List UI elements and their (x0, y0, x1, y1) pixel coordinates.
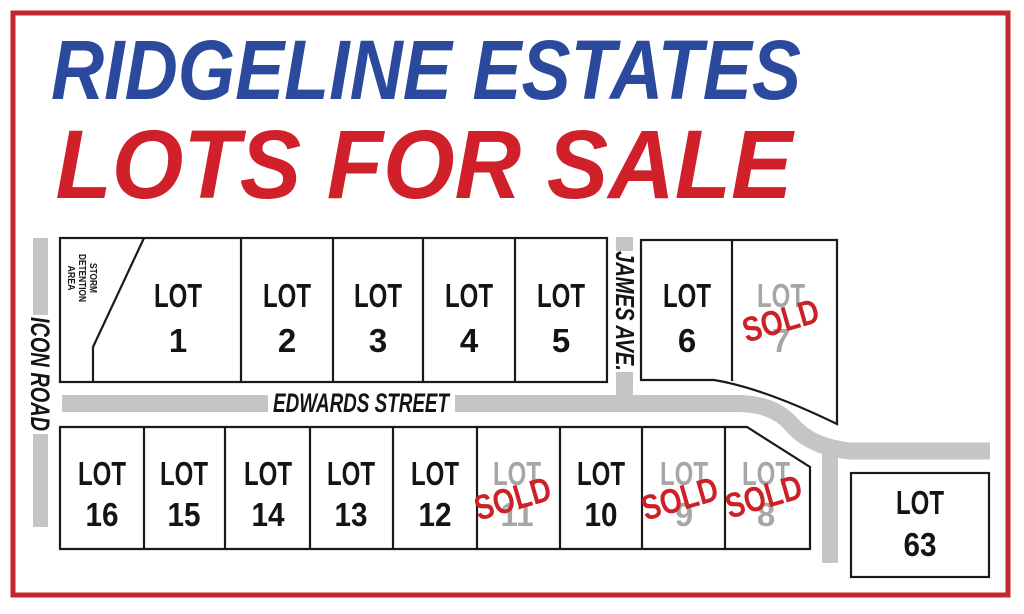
lot-16-number: 16 (86, 496, 119, 533)
lot-15-word: LOT (160, 455, 208, 492)
lot-15-number: 15 (168, 496, 201, 533)
lot-14-word: LOT (244, 455, 292, 492)
lot-13-number: 13 (335, 496, 368, 533)
lot-2-word: LOT (263, 277, 311, 314)
edwards-street-label: EDWARDS STREET (273, 388, 451, 418)
james-ave-segment-upper (616, 237, 633, 251)
icon-road-label: ICON ROAD (25, 317, 55, 431)
lot-16-word: LOT (78, 455, 126, 492)
side-road-segment-south (822, 444, 838, 563)
edwards-street-segment-west (62, 395, 268, 412)
storm-detention-line3: AREA (65, 266, 76, 291)
icon-road-segment-upper (33, 238, 48, 315)
lot-14-number: 14 (252, 496, 286, 533)
james-ave-label: JAMES AVE. (610, 251, 640, 371)
flyer-title: RIDGELINE ESTATES (51, 23, 801, 117)
lot-12-word: LOT (411, 455, 459, 492)
lot-3-word: LOT (354, 277, 402, 314)
lot-5-number: 5 (552, 322, 570, 359)
lot-63-word: LOT (896, 484, 944, 521)
storm-detention-line1: STORM (87, 263, 98, 293)
lot-2-number: 2 (278, 322, 296, 359)
lot-1-word: LOT (154, 277, 202, 314)
lot-13-word: LOT (327, 455, 375, 492)
icon-road-segment-lower (33, 434, 48, 527)
storm-detention-line2: DETENTION (76, 254, 87, 302)
lot-4-word: LOT (445, 277, 493, 314)
flyer-subtitle: LOTS FOR SALE (56, 110, 796, 219)
lot-4-number: 4 (460, 322, 479, 359)
lot-12-number: 12 (419, 496, 452, 533)
lot-map-flyer: RIDGELINE ESTATES LOTS FOR SALE ICON ROA… (0, 0, 1024, 614)
lot-1-number: 1 (169, 322, 187, 359)
lot-63-number: 63 (904, 526, 937, 563)
lot-6-number: 6 (678, 322, 696, 359)
lot-3-number: 3 (369, 322, 387, 359)
lot-10-number: 10 (585, 496, 618, 533)
lot-5-word: LOT (537, 277, 585, 314)
lot-10-word: LOT (577, 455, 625, 492)
lot-6-word: LOT (663, 277, 711, 314)
